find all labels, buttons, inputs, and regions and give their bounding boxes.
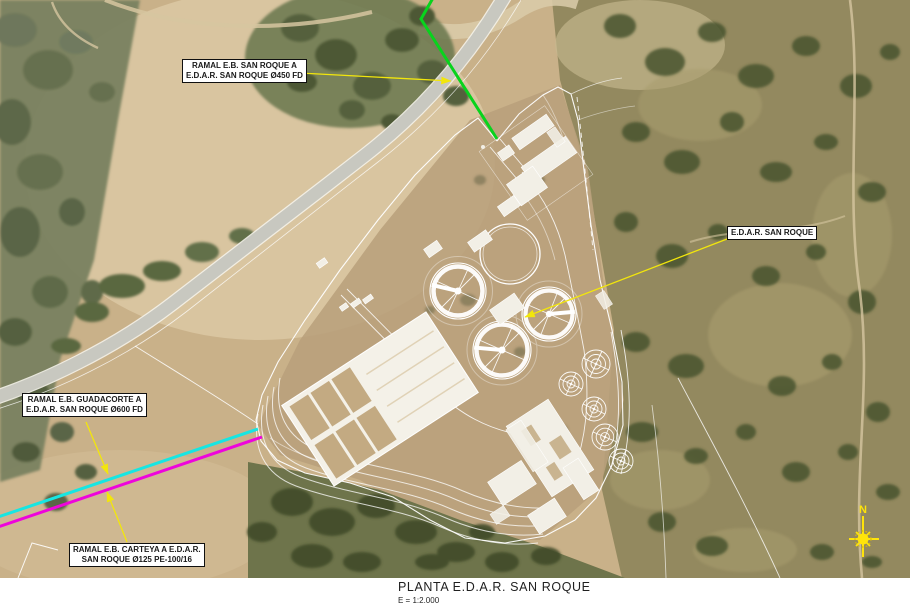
label-line: SAN ROQUE Ø125 PE-100/16 (73, 555, 201, 565)
label-edar-san-roque: E.D.A.R. SAN ROQUE (727, 226, 817, 240)
north-label: N (859, 504, 867, 516)
title-block: PLANTA E.D.A.R. SAN ROQUE E = 1:2.000 (398, 580, 591, 605)
label-line: RAMAL E.B. SAN ROQUE A (186, 61, 303, 71)
plan-sheet: N RAMAL E.B. SAN ROQUE A E.D.A.R. SAN RO… (0, 0, 910, 606)
aerial-map: N (0, 0, 910, 578)
label-line: E.D.A.R. SAN ROQUE Ø600 FD (26, 405, 143, 415)
label-ramal-san-roque: RAMAL E.B. SAN ROQUE A E.D.A.R. SAN ROQU… (182, 59, 307, 83)
sheet-title: PLANTA E.D.A.R. SAN ROQUE (398, 580, 591, 594)
label-line: RAMAL E.B. CARTEYA A E.D.A.R. (73, 545, 201, 555)
label-line: E.D.A.R. SAN ROQUE (731, 228, 813, 238)
label-line: E.D.A.R. SAN ROQUE Ø450 FD (186, 71, 303, 81)
label-line: RAMAL E.B. GUADACORTE A (26, 395, 143, 405)
label-ramal-guadacorte: RAMAL E.B. GUADACORTE A E.D.A.R. SAN ROQ… (22, 393, 147, 417)
sheet-scale: E = 1:2.000 (398, 596, 591, 605)
label-ramal-carteya: RAMAL E.B. CARTEYA A E.D.A.R. SAN ROQUE … (69, 543, 205, 567)
